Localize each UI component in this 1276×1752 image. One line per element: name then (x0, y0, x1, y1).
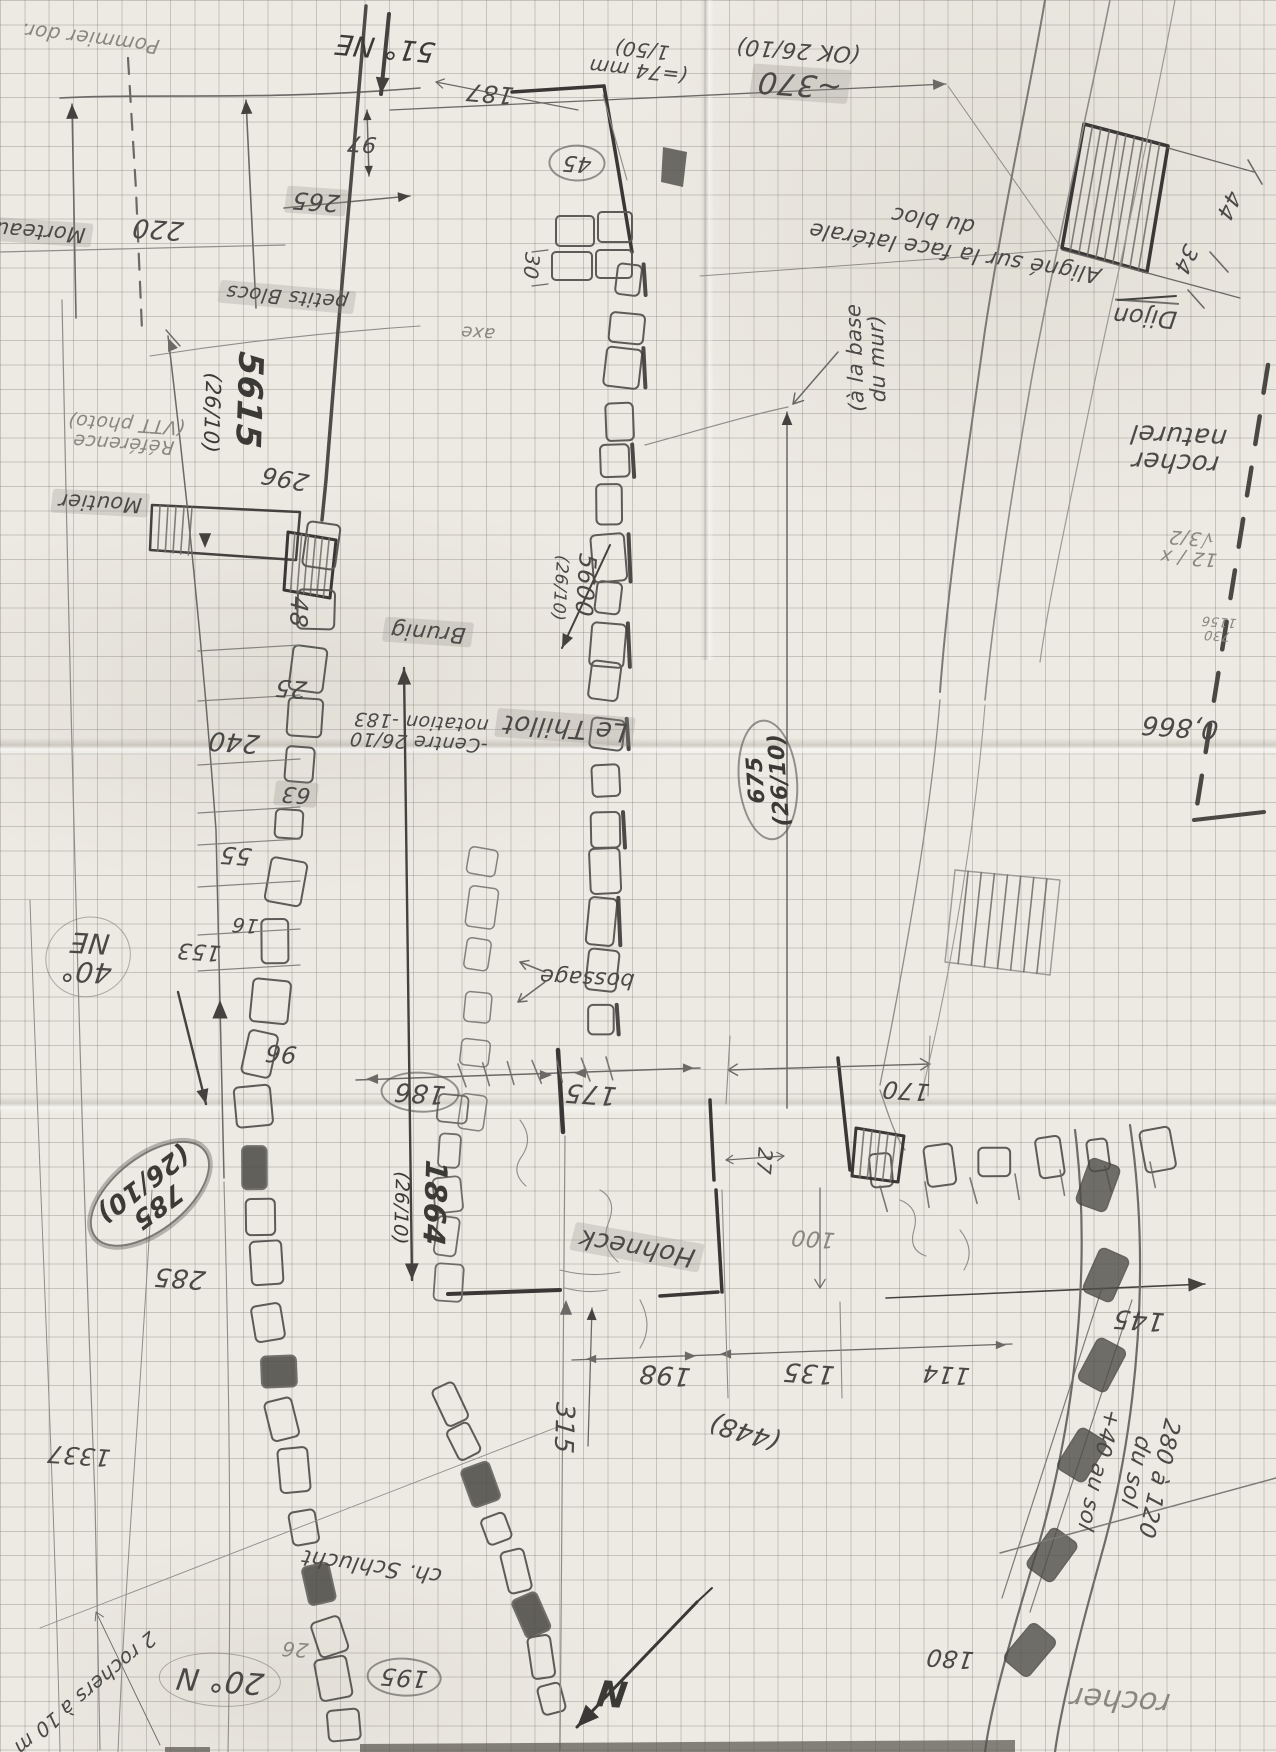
label-ok-2610: (OK 26/10) (734, 34, 861, 66)
label-rocher-naturel: rocher naturel (1125, 418, 1228, 477)
label-scale-74mm: (=74 mm 1/50) (587, 34, 693, 86)
label-north-letter: N (594, 1672, 630, 1712)
label-dijon: Dijon (1111, 298, 1179, 331)
label-dim-16: 16 (230, 914, 259, 937)
label-dim-153: 153 (176, 938, 223, 964)
label-brunig: Brunig (382, 616, 474, 647)
label-dim-63: 63 (273, 780, 319, 808)
label-dim-48: 48 (285, 595, 311, 629)
label-dim-5600-date: (26/10) (548, 554, 570, 622)
label-dim-145: 145 (1112, 1304, 1167, 1335)
label-pommier: Pommier dor. (19, 19, 161, 57)
label-dim-5615-date: (26/10) (200, 372, 225, 455)
label-morteau: Morteau (0, 216, 94, 247)
label-dim-180: 180 (925, 1644, 976, 1672)
label-dim-198: 198 (638, 1359, 693, 1390)
label-dim-27: 27 (752, 1146, 775, 1176)
label-dim-34: 34 (1169, 240, 1202, 278)
scanned-sketch-page: Pommier dor.Morteau22051° NE9726518745(=… (0, 0, 1276, 1752)
label-dim-97: 97 (346, 131, 378, 156)
label-dim-114: 114 (921, 1360, 972, 1388)
label-dim-25: 25 (274, 674, 309, 701)
label-dim-240: 240 (207, 726, 262, 757)
label-dim-5600: 5600 (570, 552, 599, 618)
label-dim-195: 195 (364, 1655, 445, 1699)
label-calc-frac: 730 1156 (1199, 613, 1238, 643)
label-dim-55: 55 (219, 841, 254, 868)
label-bossage: bossage (538, 964, 636, 992)
label-calc-0866: 0,866 (1140, 710, 1221, 742)
label-dim-30: 30 (519, 251, 542, 281)
label-dim-45: 45 (546, 143, 608, 184)
label-dim-296: 296 (259, 462, 312, 495)
label-dim-675: 675 (26/10) (734, 720, 803, 841)
label-dim-100: 100 (790, 1225, 837, 1251)
label-dim-785: 785 (26/10) (73, 1120, 226, 1268)
label-ch-schlucht: ch. Schlucht (300, 1545, 444, 1587)
label-dim-96: 96 (264, 1039, 299, 1066)
label-bearing-51ne: 51° NE (333, 29, 437, 67)
label-dim-265: 265 (284, 185, 349, 216)
label-dim-135: 135 (782, 1357, 837, 1388)
label-dim-186: 186 (378, 1069, 463, 1116)
label-hohneck: Hohneck (569, 1221, 705, 1272)
label-dim-220: 220 (131, 213, 186, 244)
label-dim-370: ~370 (749, 64, 852, 104)
label-dim-187: 187 (464, 78, 515, 107)
label-bearing-40ne: 40° NE (41, 915, 136, 1000)
label-dim-44: 44 (1212, 186, 1245, 224)
label-a-la-base: (à la base du mur) (842, 303, 890, 413)
label-centre-note: -Centre 26/10 notation -183 (349, 708, 492, 755)
label-bearing-20n: 20° N (156, 1649, 285, 1711)
label-dim-285: 285 (153, 1262, 208, 1293)
label-axe: axe (460, 321, 497, 342)
label-petits-blocs: petits Blocs (217, 280, 356, 315)
label-dim-448: (448) (706, 1408, 785, 1454)
label-dim-5615: 5615 (229, 350, 268, 450)
label-reference-photo: Référence (VTT photo) (64, 409, 187, 457)
label-dim-26: 26 (280, 1638, 309, 1661)
label-calc-sqrt: 12 / x √3/2 (1144, 524, 1235, 570)
label-dim-175: 175 (564, 1078, 619, 1109)
label-rocher-bottom: rocher (1068, 1681, 1172, 1719)
label-dim-1337: 1337 (46, 1440, 112, 1469)
handwritten-annotations: Pommier dor.Morteau22051° NE9726518745(=… (0, 0, 1276, 1752)
label-dim-170: 170 (881, 1076, 932, 1104)
label-le-thillot: Le Thillot (494, 708, 636, 747)
label-dim-1864: 1864 (417, 1159, 451, 1248)
label-note-2-rochers: 2 rochers à 10 m (10, 1627, 159, 1752)
label-dim-1864-date: (26/10) (389, 1170, 411, 1245)
label-dim-315: 315 (549, 1401, 578, 1455)
label-moutier: Moutier (50, 488, 150, 517)
